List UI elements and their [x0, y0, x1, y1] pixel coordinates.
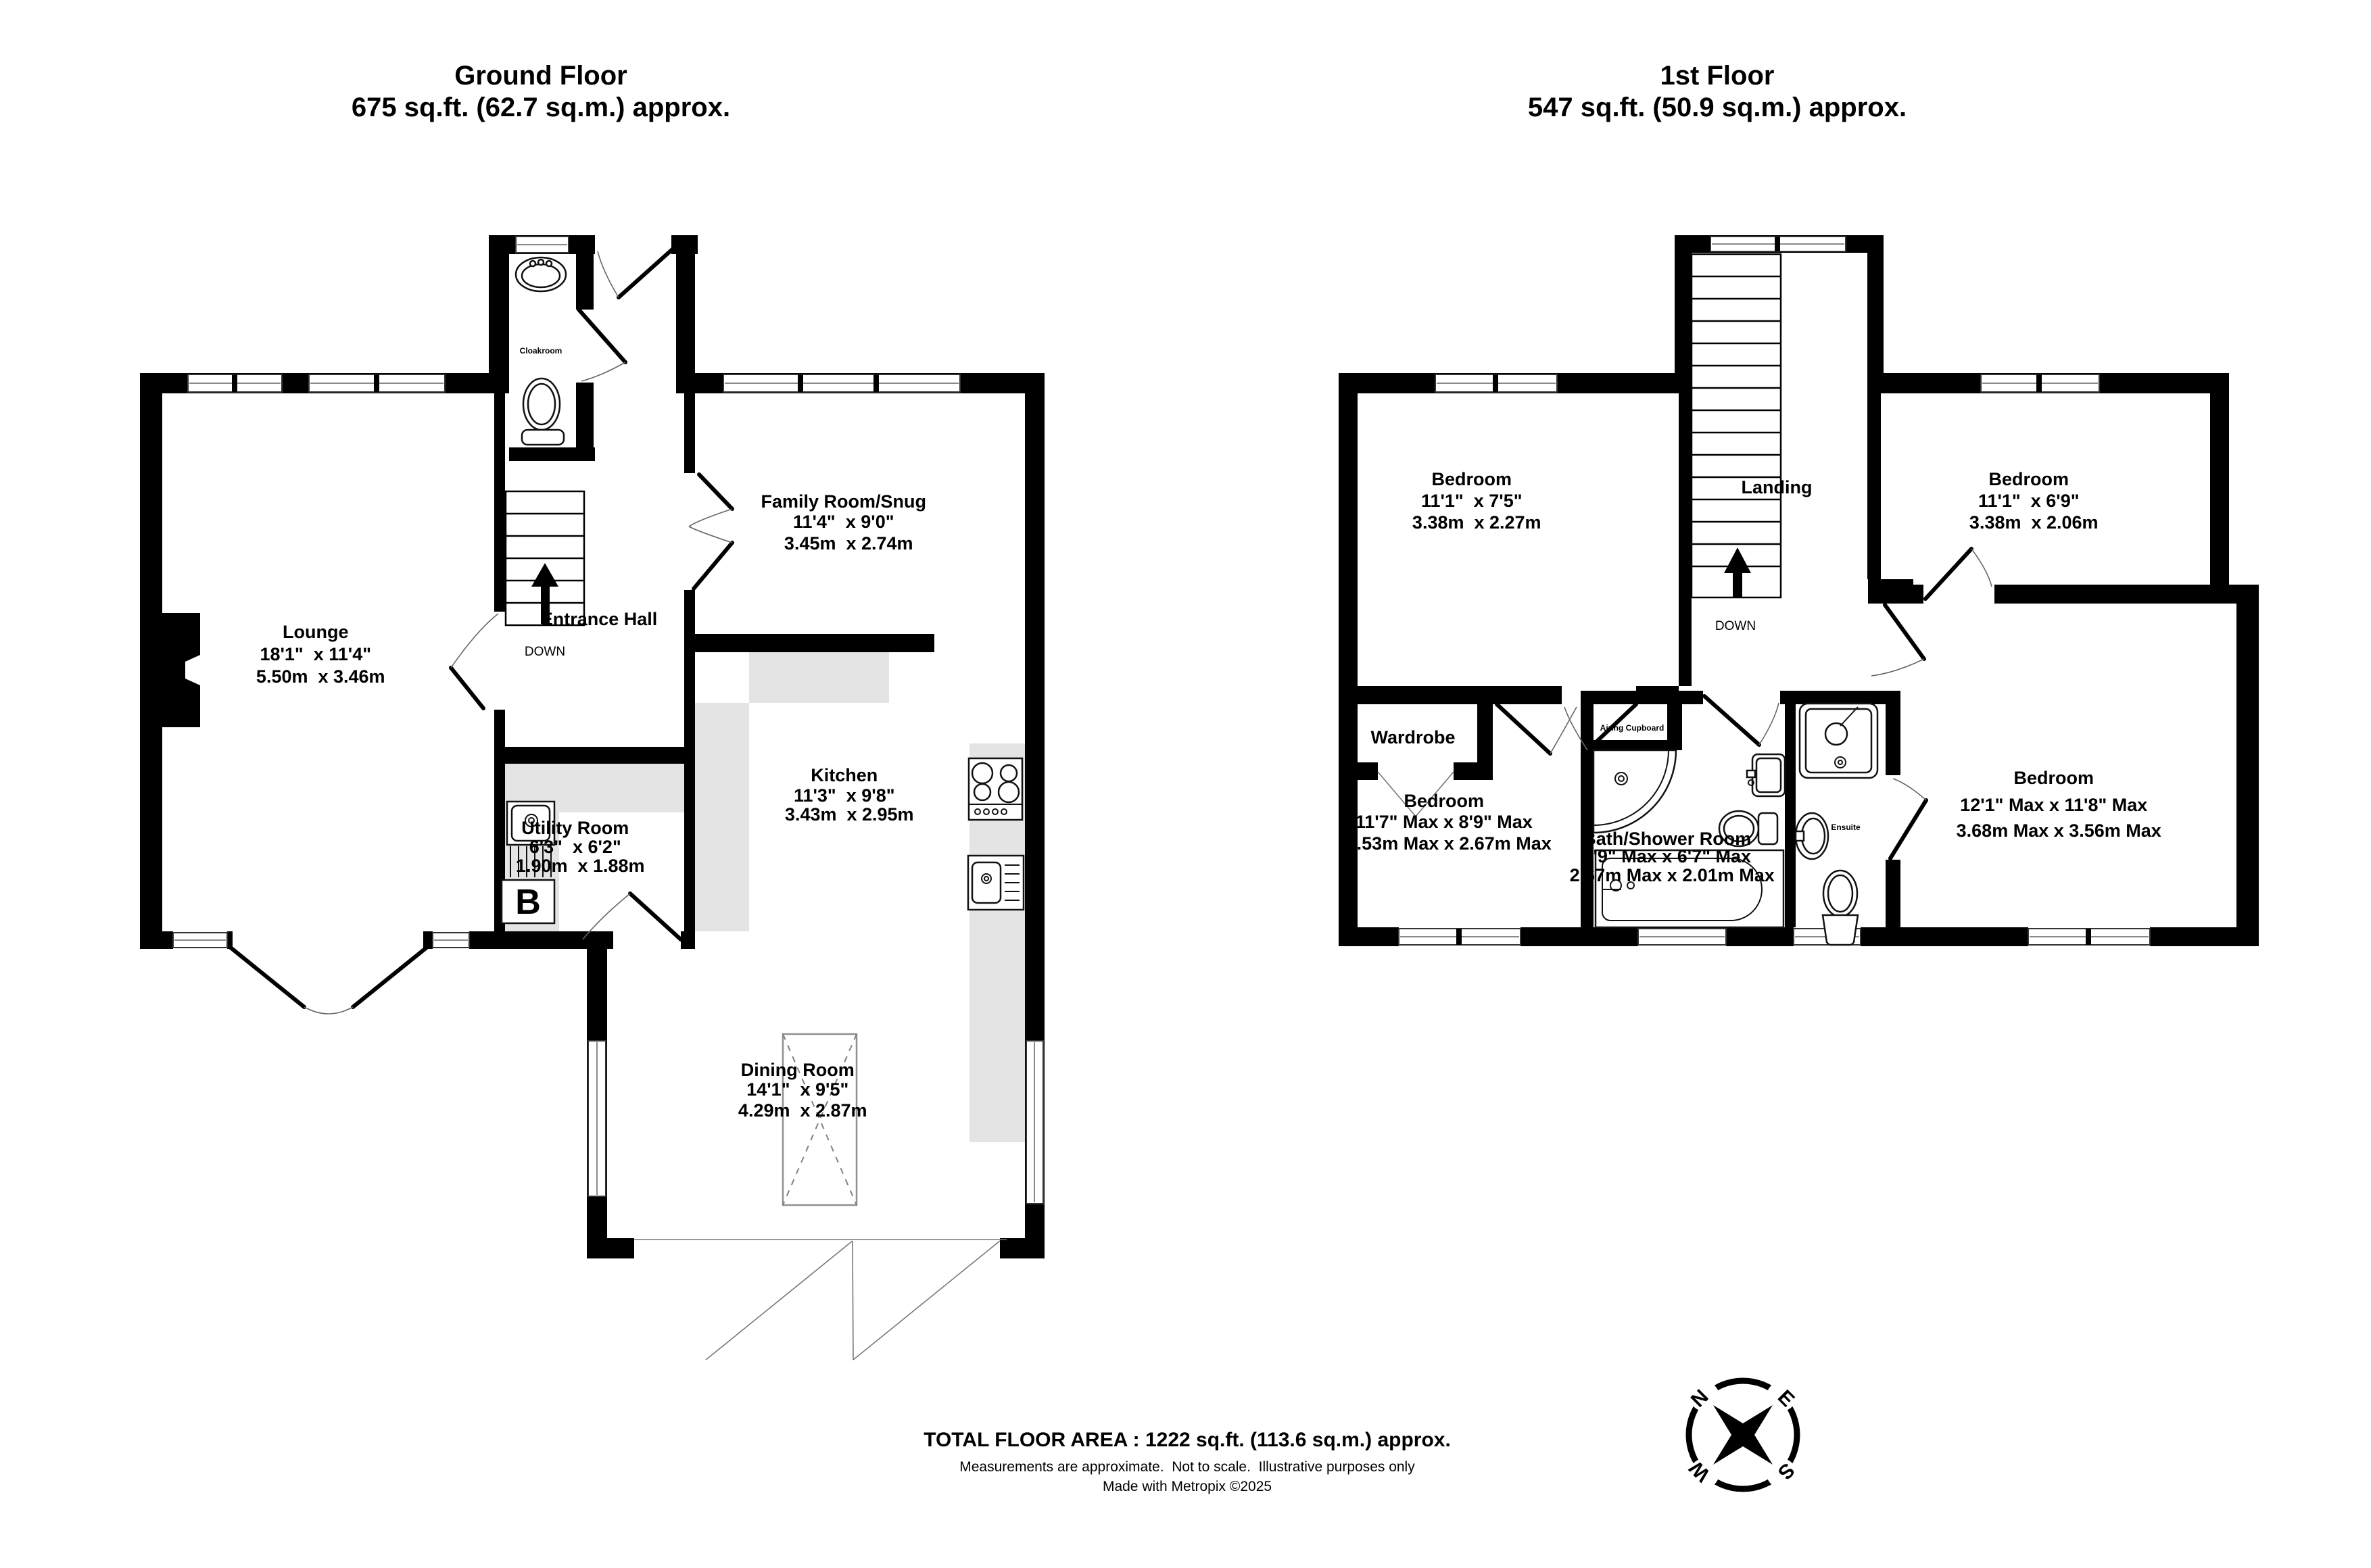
cloakroom-basin-icon — [516, 258, 566, 291]
ground-floor-title: Ground Floor — [454, 61, 627, 91]
wardrobe-label: Wardrobe — [1370, 727, 1455, 748]
disclaimer-label: Measurements are approximate. Not to sca… — [959, 1459, 1415, 1475]
lounge-top-window-1 — [188, 374, 282, 392]
first-floor-title: 1st Floor — [1660, 61, 1775, 91]
hob-icon — [969, 758, 1022, 820]
lounge-bottom-window-2 — [433, 933, 469, 948]
bedroom-tr-label: Bedroom 11'1" x 6'9" 3.38m x 2.06m — [0, 0, 2124, 533]
bath-shower-label: Bath/Shower Room 8'9" Max x 6'7" Max 2.6… — [0, 0, 1800, 885]
bedroom-bl-door — [1497, 704, 1577, 754]
floorplan-page: Ground Floor 675 sq.ft. (62.7 sq.m.) app… — [0, 0, 2371, 1568]
bedroom-bl-window — [1399, 929, 1520, 945]
total-floor-area-label: TOTAL FLOOR AREA : 1222 sq.ft. (113.6 sq… — [924, 1429, 1451, 1451]
first-floor-subtitle: 547 sq.ft. (50.9 sq.m.) approx. — [1528, 93, 1907, 122]
chimney-breast — [162, 613, 200, 727]
airing-cupboard-label: Airing Cupboard — [1600, 723, 1665, 733]
utility-room-label: Utility Room 6'3" x 6'2" 1.90m x 1.88m — [0, 0, 670, 876]
entrance-hall-label: Entrance Hall — [541, 609, 658, 629]
shower-icon — [1594, 750, 1676, 833]
lounge-top-window-2 — [309, 374, 445, 392]
ensuite-label: Ensuite — [1831, 823, 1861, 832]
compass-rose: N E S W — [1685, 1381, 1798, 1489]
ensuite-toilet-icon — [1823, 871, 1858, 945]
ground-floor-plan: Ground Floor 675 sq.ft. (62.7 sq.m.) app… — [0, 0, 1045, 1360]
ensuite-basin-icon — [1796, 813, 1828, 859]
bedroom-tr-window — [1981, 374, 2099, 392]
dining-sliding-doors — [634, 1240, 1007, 1360]
lounge-bottom-window-1 — [173, 933, 227, 948]
bedroom-tr-door — [1925, 549, 1992, 599]
cloakroom-label: Cloakroom — [520, 346, 562, 356]
bedroom-br-window — [2028, 929, 2150, 945]
lounge-patio-doors — [231, 948, 427, 1014]
ensuite-door — [1890, 779, 1926, 858]
front-door — [598, 246, 676, 297]
dining-room-label: Dining Room 14'1" x 9'5" 4.29m x 2.87m — [0, 0, 892, 1121]
bathroom-window — [1638, 929, 1726, 945]
ground-down-label: DOWN — [525, 645, 565, 659]
bedroom-tl-label: Bedroom 11'1" x 7'5" 3.38m x 2.27m — [0, 0, 1566, 533]
ensuite-shower-tray-icon — [1800, 704, 1877, 778]
first-floor-plan: 1st Floor 547 sq.ft. (50.9 sq.m.) approx… — [0, 0, 2259, 946]
dining-left-window — [588, 1041, 606, 1196]
cloakroom-toilet-icon — [522, 378, 564, 445]
bathroom-basin-icon — [1747, 754, 1785, 796]
landing-window — [1710, 237, 1846, 251]
floorplan-canvas: Ground Floor 675 sq.ft. (62.7 sq.m.) app… — [0, 0, 2371, 1568]
bathroom-door — [1704, 696, 1779, 745]
ground-stairs — [506, 491, 584, 625]
bedroom-br-door — [1871, 605, 1924, 676]
credit-label: Made with Metropix ©2025 — [1103, 1479, 1272, 1494]
kitchen-sink-icon — [968, 856, 1024, 910]
ground-floor-subtitle: 675 sq.ft. (62.7 sq.m.) approx. — [352, 93, 730, 122]
family-room-double-doors — [689, 474, 732, 589]
cloakroom-window — [516, 237, 569, 253]
cloakroom-door — [579, 310, 625, 381]
landing-label: Landing — [1742, 477, 1813, 497]
first-floor-down-label: DOWN — [1715, 619, 1756, 633]
boiler: B — [502, 880, 554, 923]
lounge-label: Lounge 18'1" x 11'4" 5.50m x 3.46m — [0, 0, 410, 687]
bedroom-tl-window — [1435, 374, 1557, 392]
compass-star-icon — [1713, 1405, 1773, 1465]
lounge-door — [451, 614, 498, 708]
family-room-window — [723, 374, 960, 392]
first-floor-stairs — [1692, 254, 1781, 597]
footer: TOTAL FLOOR AREA : 1222 sq.ft. (113.6 sq… — [924, 1429, 1451, 1494]
dining-right-window — [1026, 1041, 1043, 1204]
boiler-label: B — [515, 883, 541, 922]
